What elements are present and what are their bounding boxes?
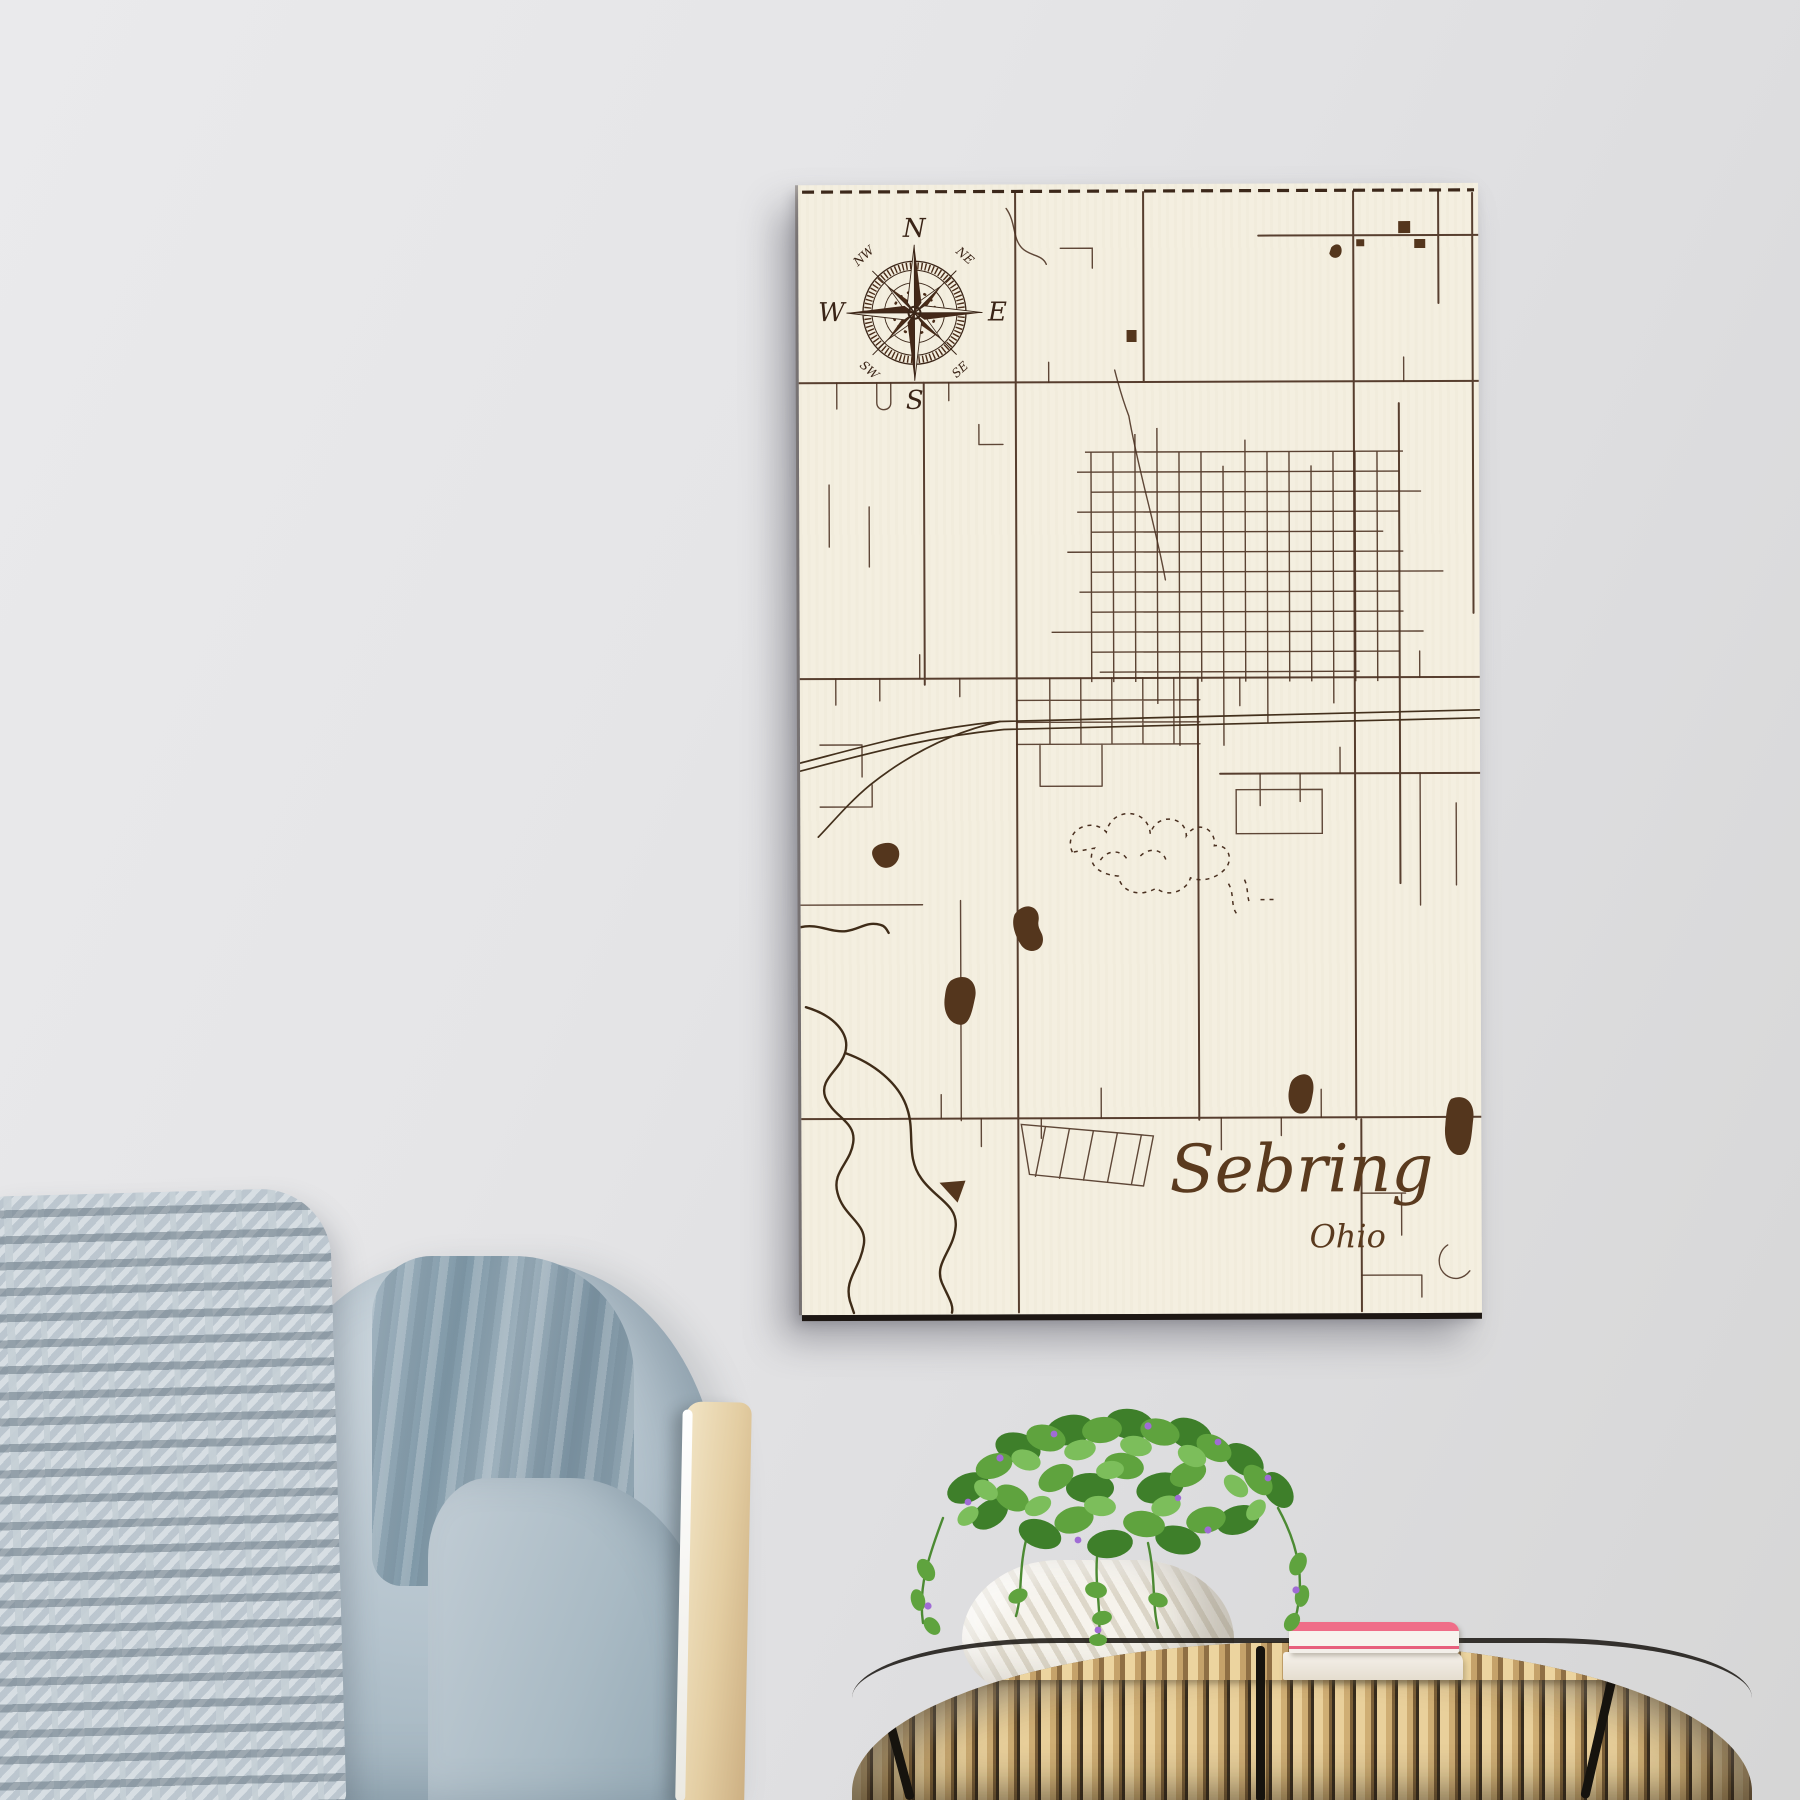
trail-loops (1070, 813, 1274, 914)
street-map-engraving: N S W E NW NE SW SE Sebring Ohio (798, 183, 1482, 1315)
map-artwork-board: N S W E NW NE SW SE Sebring Ohio (798, 183, 1482, 1315)
compass-label-ne: NE (952, 243, 977, 267)
compass-label-s: S (906, 386, 924, 416)
compass-label-n: N (902, 214, 927, 244)
compass-label-e: E (987, 297, 1007, 327)
compass-label-sw: SW (857, 358, 883, 383)
map-title: Sebring (1169, 1130, 1433, 1208)
living-room-scene: N S W E NW NE SW SE Sebring Ohio (0, 0, 1800, 1800)
map-subtitle: Ohio (1309, 1217, 1385, 1255)
potted-plant-foliage: "" (848, 1338, 1368, 1678)
top-edge-road (802, 190, 1474, 192)
couch-wood-frame (678, 1401, 752, 1800)
compass-rose-icon: N S W E NW NE SW SE (818, 213, 1008, 416)
compass-label-nw: NW (850, 242, 878, 270)
downtown-grid (1051, 427, 1444, 746)
compass-label-se: SE (949, 359, 971, 381)
compass-label-w: W (818, 298, 847, 328)
knit-throw-pillow (0, 1187, 347, 1800)
